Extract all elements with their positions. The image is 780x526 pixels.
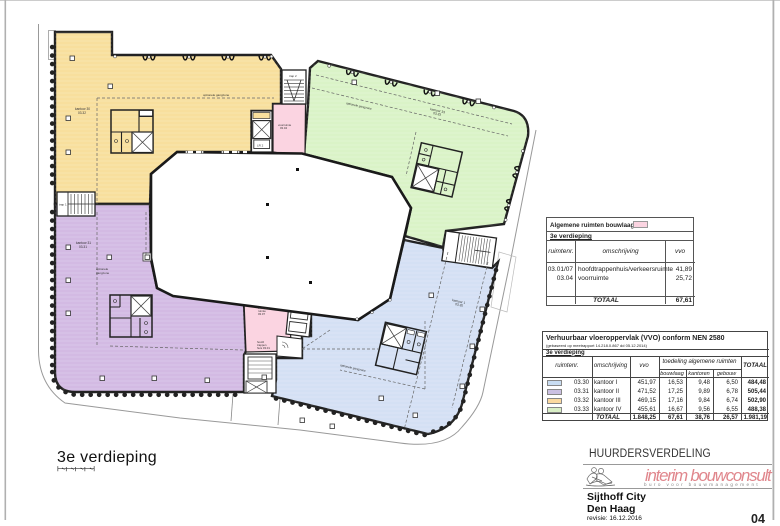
svg-text:03.07: 03.07 <box>258 312 265 316</box>
svg-text:03.31: 03.31 <box>79 245 87 249</box>
svg-text:LR 2: LR 2 <box>257 144 264 148</box>
svg-text:trap 2: trap 2 <box>289 74 297 78</box>
svg-text:huis 03.01: huis 03.01 <box>257 346 270 350</box>
svg-text:03.32: 03.32 <box>78 111 86 115</box>
svg-text:optionele gangzone: optionele gangzone <box>203 93 230 97</box>
svg-text:trap 1: trap 1 <box>59 203 67 207</box>
svg-text:03.04: 03.04 <box>280 126 287 130</box>
svg-text:gangzone: gangzone <box>96 271 110 275</box>
